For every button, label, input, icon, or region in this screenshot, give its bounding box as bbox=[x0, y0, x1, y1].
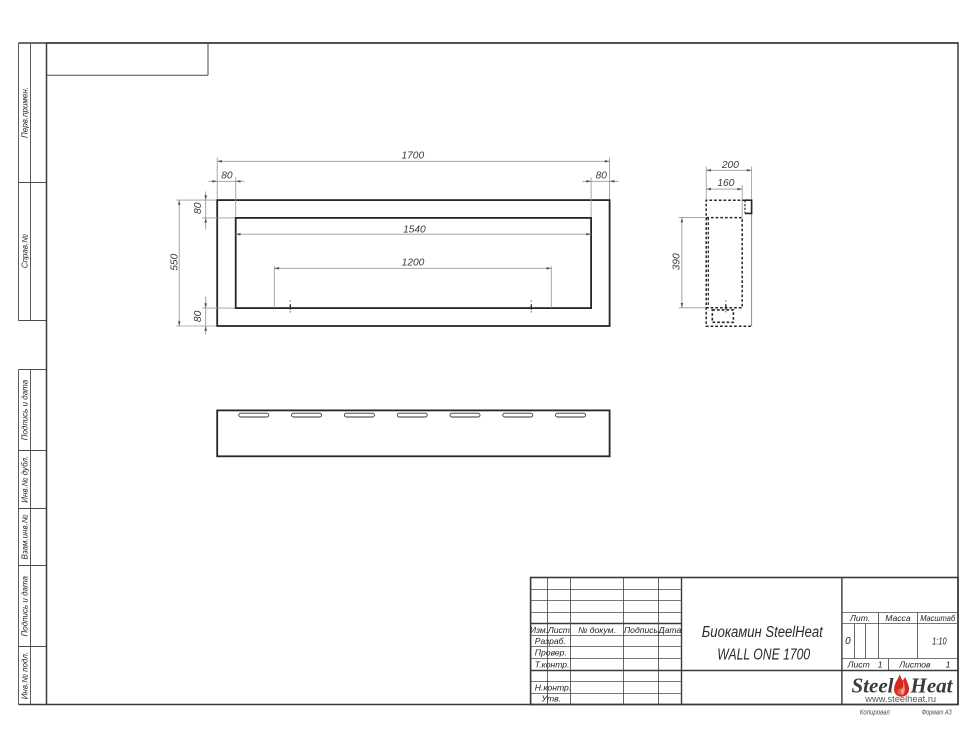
svg-text:Разраб.: Разраб. bbox=[535, 636, 566, 646]
svg-text:80: 80 bbox=[221, 171, 233, 182]
svg-text:Инв.№ подл.: Инв.№ подл. bbox=[20, 652, 29, 699]
svg-text:1200: 1200 bbox=[402, 258, 425, 269]
svg-text:Листов: Листов bbox=[898, 660, 931, 670]
svg-text:550: 550 bbox=[170, 253, 181, 270]
svg-text:80: 80 bbox=[193, 202, 204, 214]
svg-text:WALL ONE 1700: WALL ONE 1700 bbox=[717, 647, 810, 664]
svg-text:1700: 1700 bbox=[401, 151, 424, 162]
svg-text:Т.контр.: Т.контр. bbox=[535, 659, 570, 669]
svg-text:Лист: Лист bbox=[847, 660, 870, 670]
svg-text:Н.контр.: Н.контр. bbox=[535, 682, 571, 692]
svg-text:Дата: Дата bbox=[658, 625, 682, 635]
svg-text:80: 80 bbox=[193, 310, 204, 322]
svg-text:Подпись: Подпись bbox=[624, 625, 659, 635]
svg-text:80: 80 bbox=[596, 171, 608, 182]
svg-text:Масштаб: Масштаб bbox=[920, 613, 956, 623]
svg-text:Копировал: Копировал bbox=[860, 708, 891, 717]
svg-text:0: 0 bbox=[845, 636, 851, 647]
svg-text:www.steelheat.ru: www.steelheat.ru bbox=[864, 694, 936, 704]
svg-text:200: 200 bbox=[721, 160, 739, 171]
svg-text:160: 160 bbox=[717, 178, 734, 189]
svg-text:Перв.примен.: Перв.примен. bbox=[20, 87, 29, 138]
svg-text:Лит.: Лит. bbox=[849, 613, 870, 623]
svg-text:Инв.№ дубл.: Инв.№ дубл. bbox=[20, 456, 29, 503]
svg-text:1:10: 1:10 bbox=[932, 636, 947, 647]
svg-text:Взам.инв.№: Взам.инв.№ bbox=[20, 514, 29, 559]
svg-text:Лист: Лист bbox=[547, 625, 570, 635]
svg-text:Биокамин SteelHeat: Биокамин SteelHeat bbox=[702, 624, 824, 641]
svg-text:Справ.№: Справ.№ bbox=[20, 234, 29, 268]
svg-text:Формат А3: Формат А3 bbox=[922, 708, 953, 717]
svg-text:Подпись и дата: Подпись и дата bbox=[20, 575, 29, 636]
svg-text:Провер.: Провер. bbox=[535, 648, 567, 658]
svg-text:Утв.: Утв. bbox=[541, 694, 562, 704]
svg-text:Масса: Масса bbox=[885, 613, 911, 623]
svg-text:390: 390 bbox=[671, 253, 682, 270]
svg-text:Изм.: Изм. bbox=[530, 625, 548, 635]
svg-text:Подпись и дата: Подпись и дата bbox=[20, 379, 29, 440]
svg-text:1540: 1540 bbox=[403, 224, 426, 235]
svg-text:№ докум.: № докум. bbox=[578, 625, 616, 635]
svg-text:1: 1 bbox=[946, 660, 951, 670]
svg-text:1: 1 bbox=[878, 660, 883, 670]
